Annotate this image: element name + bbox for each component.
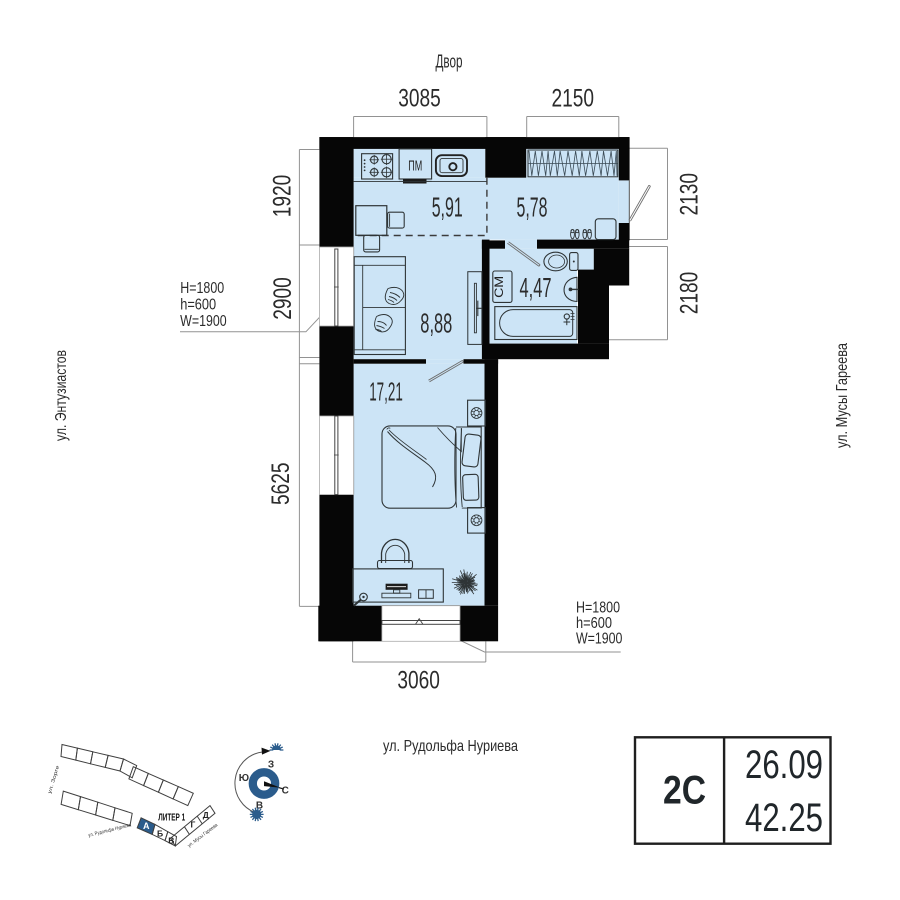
svg-text:Г: Г [190, 820, 195, 830]
svg-text:H=1800: H=1800 [180, 280, 224, 297]
svg-text:3060: 3060 [397, 667, 440, 695]
svg-text:ул. Мусы Гареева: ул. Мусы Гареева [834, 343, 851, 448]
svg-text:4,47: 4,47 [520, 272, 552, 303]
svg-text:42.25: 42.25 [745, 796, 823, 840]
svg-text:2900: 2900 [269, 277, 297, 320]
svg-text:ул. Рудольфа Нуриева: ул. Рудольфа Нуриева [383, 738, 518, 755]
svg-text:5,91: 5,91 [432, 191, 463, 222]
svg-text:26.09: 26.09 [745, 743, 823, 787]
svg-text:8,88: 8,88 [420, 307, 452, 338]
svg-text:3085: 3085 [398, 85, 441, 113]
svg-text:2130: 2130 [676, 173, 704, 216]
svg-text:ул. Энтузиастов: ул. Энтузиастов [53, 350, 70, 441]
svg-text:2180: 2180 [676, 272, 704, 315]
svg-text:2С: 2С [663, 769, 706, 813]
svg-text:1920: 1920 [269, 175, 297, 218]
svg-text:5625: 5625 [267, 462, 295, 505]
svg-text:Б: Б [157, 829, 163, 839]
svg-text:h=600: h=600 [180, 297, 216, 314]
svg-text:W=1900: W=1900 [576, 631, 623, 648]
svg-text:З: З [268, 760, 274, 771]
svg-text:2150: 2150 [552, 85, 595, 113]
svg-text:Д: Д [203, 810, 209, 820]
svg-text:В: В [256, 800, 263, 811]
svg-text:ЛИТЕР 1: ЛИТЕР 1 [158, 811, 185, 823]
svg-text:А: А [143, 821, 150, 831]
svg-text:H=1800: H=1800 [576, 599, 620, 616]
svg-text:Двор: Двор [436, 51, 463, 71]
svg-text:h=600: h=600 [576, 615, 612, 632]
svg-text:Ю: Ю [239, 773, 249, 784]
svg-text:ПМ: ПМ [408, 158, 422, 175]
svg-text:С: С [282, 786, 289, 797]
svg-text:В: В [168, 835, 174, 845]
svg-text:17,21: 17,21 [369, 376, 403, 406]
svg-text:СМ: СМ [492, 276, 506, 298]
svg-text:5,78: 5,78 [517, 191, 548, 222]
svg-text:W=1900: W=1900 [180, 313, 227, 330]
